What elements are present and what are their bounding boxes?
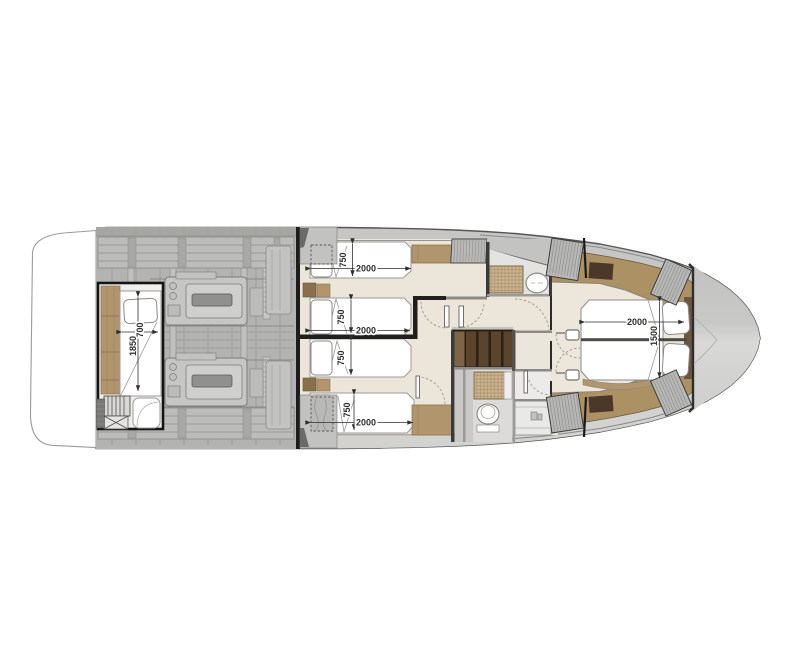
svg-text:2000: 2000 — [356, 264, 376, 274]
svg-text:1500: 1500 — [649, 326, 659, 346]
svg-text:750: 750 — [342, 402, 352, 417]
svg-text:700: 700 — [135, 322, 145, 337]
svg-text:2000: 2000 — [356, 418, 376, 428]
svg-text:750: 750 — [336, 309, 346, 324]
svg-text:750: 750 — [336, 350, 346, 365]
svg-text:2000: 2000 — [356, 326, 376, 336]
svg-text:2000: 2000 — [627, 317, 647, 327]
svg-text:1850: 1850 — [128, 336, 138, 356]
svg-text:750: 750 — [338, 252, 348, 267]
